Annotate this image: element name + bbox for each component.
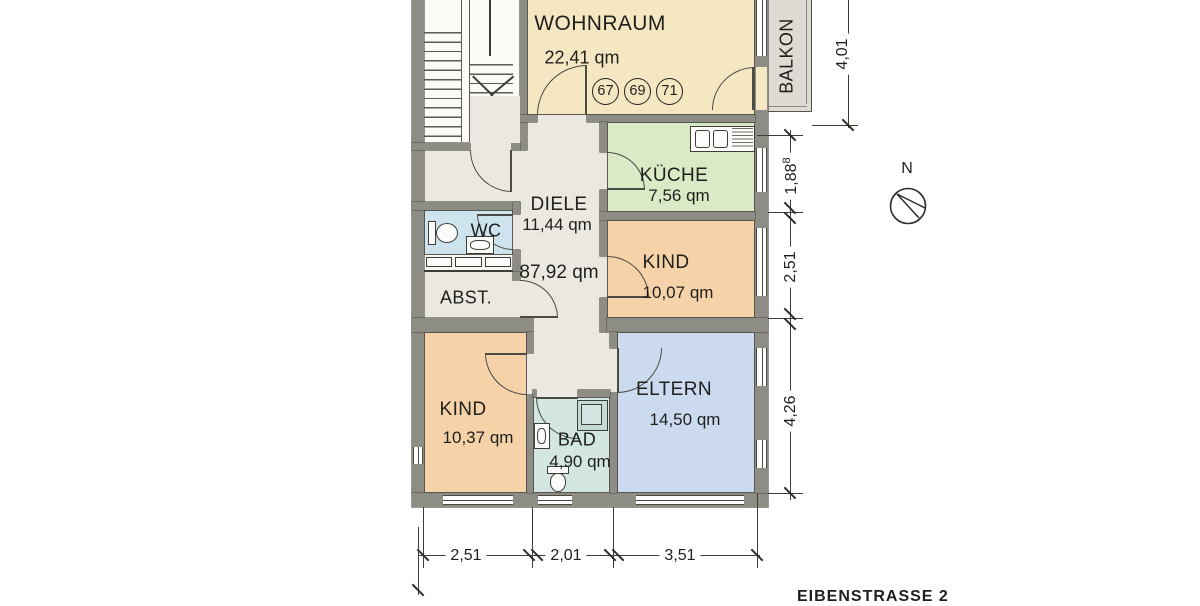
window-glass-line (762, 440, 763, 468)
window-kueche (756, 148, 767, 192)
dim-balcony: 4,01 (834, 33, 852, 74)
street-label: EIBENSTRASSE 2 (797, 588, 949, 606)
kitchen-sink-basin-2 (713, 130, 728, 148)
dim-right-bottom: 4,26 (782, 390, 800, 431)
wall-hall-east-c (600, 298, 607, 332)
wall-entry-a (412, 143, 470, 150)
unit-number-69: 69 (629, 83, 645, 99)
wall-kindleft-east-a (527, 332, 533, 353)
wall-mid-b (607, 318, 768, 332)
shower-outline (577, 400, 608, 431)
wall-bad-top-a (533, 390, 536, 397)
unit-number-circle-71: 71 (656, 78, 683, 105)
kind-left-label: KIND (440, 399, 487, 421)
balcony-door-opening (756, 67, 767, 110)
dim-witness-r1 (757, 135, 803, 136)
door-leaf-bad (536, 397, 578, 399)
diele-label: DIELE (531, 194, 588, 216)
unit-number-circle-67: 67 (592, 78, 619, 105)
door-leaf-eltern (617, 348, 619, 393)
window-eltern-bottom (636, 495, 744, 505)
window-glass-line (762, 228, 763, 296)
window-eltern-1 (756, 348, 767, 386)
diele-area: 11,44 qm (522, 215, 592, 235)
door-leaf-kueche (607, 188, 645, 190)
wall-hall-east-a (600, 122, 607, 152)
window-kind-left-bottom (443, 495, 513, 505)
dim-bottom-1: 2,51 (445, 547, 486, 565)
eltern-label: ELTERN (636, 379, 712, 401)
kitchen-sink-basin-1 (695, 130, 710, 148)
unit-number-71: 71 (661, 83, 677, 99)
window-bad-bottom (538, 495, 572, 505)
kueche-label: KÜCHE (640, 165, 709, 187)
room-hall-pass (533, 318, 607, 332)
kind-right-label: KIND (643, 252, 690, 274)
bad-sink-basin (537, 428, 546, 444)
unit-number-circle-69: 69 (624, 78, 651, 105)
wall-mid-a (412, 318, 533, 332)
wc-toilet-tank (428, 221, 436, 245)
stair-steps-right-flight (470, 56, 513, 96)
wardrobe-segment-1 (426, 257, 452, 267)
kitchen-drainer-hatch (732, 128, 753, 149)
dim-right-top-value: 1,88 (783, 163, 800, 194)
balkon-label: BALKON (777, 18, 798, 93)
kind-right-area: 10,07 qm (643, 283, 714, 303)
kitchen-counter (690, 126, 755, 152)
stair-stringer (461, 0, 470, 142)
wardrobe-segment-3 (485, 257, 511, 267)
door-leaf-wc (477, 214, 513, 216)
window-wohnraum-right (756, 0, 767, 56)
shower-tray (581, 404, 602, 425)
wall-wohnraum-bottom-b (587, 115, 755, 122)
door-leaf-entrance (510, 150, 512, 192)
wall-eltern-west-b (610, 393, 617, 493)
wall-shelf-divider (424, 270, 513, 272)
window-kind-left-side (413, 447, 423, 464)
eltern-area: 14,50 qm (650, 410, 721, 430)
wc-toilet-bowl (436, 223, 458, 243)
door-leaf-kind-left (485, 353, 527, 355)
window-glass-line (762, 148, 763, 192)
dim-right-top-sup: 8 (781, 157, 793, 163)
wall-eltern-west-a (610, 332, 617, 348)
wall-kindleft-east-b (527, 395, 533, 493)
dim-right-mid: 2,51 (782, 246, 800, 287)
wall-stair-right (520, 0, 527, 150)
door-leaf-balkon (752, 67, 754, 110)
wohnraum-area: 22,41 qm (544, 48, 619, 69)
compass-north-icon: N (880, 158, 940, 230)
floorplan-canvas: WOHNRAUM 22,41 qm 67 69 71 KÜCHE 7,56 qm… (0, 0, 1200, 600)
dim-right-top: 1,888 (781, 152, 801, 199)
stair-rail-line (489, 0, 491, 56)
dim-bottom-3: 3,51 (659, 547, 700, 565)
window-kind-right (756, 228, 767, 296)
window-glass-line (762, 0, 763, 56)
kind-left-area: 10,37 qm (443, 428, 514, 448)
window-glass-line (538, 500, 572, 501)
stair-landing (470, 96, 520, 143)
wardrobe-segment-2 (455, 257, 482, 267)
wc-label: WC (471, 221, 502, 242)
stair-steps-left-flight (424, 24, 462, 142)
wall-wohnraum-bottom-a (520, 115, 537, 122)
total-area-label: 87,92 qm (519, 262, 598, 284)
dim-bottom-2: 2,01 (545, 547, 586, 565)
wall-wc-top (412, 202, 520, 210)
door-leaf-abst (520, 316, 558, 318)
unit-number-67: 67 (597, 83, 613, 99)
compass-n-label: N (901, 160, 913, 178)
bad-toilet-bowl (550, 473, 566, 492)
bad-area: 4,90 qm (549, 452, 610, 472)
wc-sink-basin (470, 240, 490, 250)
dim-extra-left-line (418, 527, 419, 595)
balkon-railing-line-bottom (767, 106, 807, 107)
wall-wc-right-a (513, 202, 520, 214)
bad-label: BAD (558, 430, 596, 451)
window-glass-line (762, 348, 763, 386)
window-eltern-2 (756, 440, 767, 468)
wall-entry-b (512, 143, 520, 150)
wall-hall-east-b (600, 190, 607, 256)
room-hall-lower (533, 332, 610, 390)
bad-sink (534, 423, 550, 449)
wall-bad-top-b (578, 390, 610, 397)
window-glass-line (636, 500, 744, 501)
dim-witness-r4 (768, 493, 803, 494)
wall-kueche-kind (600, 212, 755, 220)
door-leaf-wohnraum (585, 65, 587, 115)
dim-witness-1 (423, 507, 424, 568)
window-glass-line (443, 500, 513, 501)
kueche-area: 7,56 qm (648, 186, 709, 206)
balkon-railing-line (806, 0, 807, 104)
wohnraum-label: WOHNRAUM (534, 12, 666, 36)
window-glass-line (418, 447, 419, 464)
wall-outer-left (412, 0, 424, 493)
abst-label: ABST. (440, 288, 492, 309)
